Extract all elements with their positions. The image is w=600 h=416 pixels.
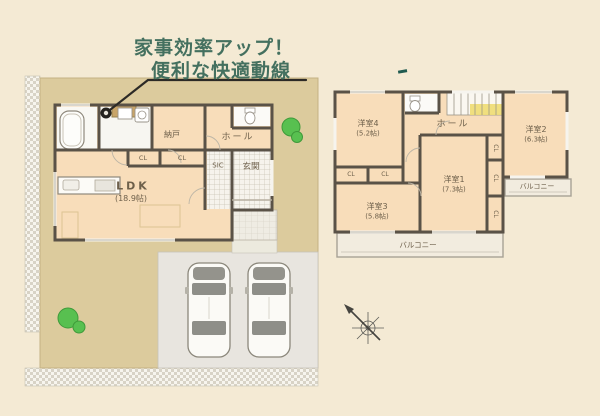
closet-label: CL: [492, 210, 498, 218]
room-label-yoshitsu1: 洋室1: [443, 176, 464, 184]
toilet-icon-1f: [245, 108, 255, 124]
floor-plan-graphic: [0, 0, 600, 416]
room-size-yoshitsu1: (7.3帖): [442, 187, 466, 194]
room-label-yoshitsu3: 洋室3: [366, 203, 387, 211]
toilet-icon-2f: [410, 96, 420, 112]
room-label-ldk: LDK: [116, 181, 150, 192]
room-size-ldk: (18.9帖): [115, 195, 147, 203]
floor-plan-2f: [335, 69, 571, 257]
teal-mark: [398, 69, 407, 74]
room-size-yoshitsu3: (5.8帖): [365, 214, 389, 221]
closet-label: CL: [381, 172, 389, 178]
closet-label: CL: [492, 174, 498, 182]
stairs-icon: [447, 93, 503, 115]
floor-plan-page: 家事効率アップ！ 便利な快適動線 納戸 CL CL ホール SIC 玄関 LDK…: [0, 0, 600, 416]
washer-icon: [135, 108, 149, 122]
room-label-nando: 納戸: [164, 131, 180, 139]
closet-label: CL: [492, 144, 498, 152]
driveway: [158, 240, 318, 368]
car-icon: [185, 263, 233, 357]
compass-icon: [344, 304, 384, 344]
closet-label: CL: [178, 155, 186, 162]
balcony-label-south: バルコニー: [399, 241, 436, 249]
room-label-yoshitsu2: 洋室2: [525, 126, 546, 134]
bathtub-icon: [60, 111, 84, 149]
closet-label: CL: [347, 172, 355, 178]
callout-title-line2: 便利な快適動線: [151, 56, 291, 83]
site-boundary-hatch-south: [25, 368, 318, 386]
room-label-hall-2f: ホール: [436, 121, 469, 130]
site-boundary-hatch-west: [25, 76, 40, 332]
house-1f: [55, 105, 277, 240]
balcony-label-east: バルコニー: [520, 184, 555, 191]
porch-tiles: [232, 210, 277, 240]
sink-icon: [118, 108, 132, 119]
closet-label: CL: [139, 155, 147, 162]
room-label-yoshitsu4: 洋室4: [357, 120, 378, 128]
room-size-yoshitsu4: (5.2帖): [356, 131, 380, 138]
room-label-hall-1f: ホール: [221, 134, 254, 143]
kitchen-counter-icon: [58, 177, 120, 194]
room-label-sic: SIC: [212, 163, 223, 170]
car-icon: [245, 263, 293, 357]
room-size-yoshitsu2: (6.3帖): [524, 137, 548, 144]
site-plan-1f: [25, 76, 318, 386]
room-label-genkan: 玄関: [242, 163, 259, 172]
